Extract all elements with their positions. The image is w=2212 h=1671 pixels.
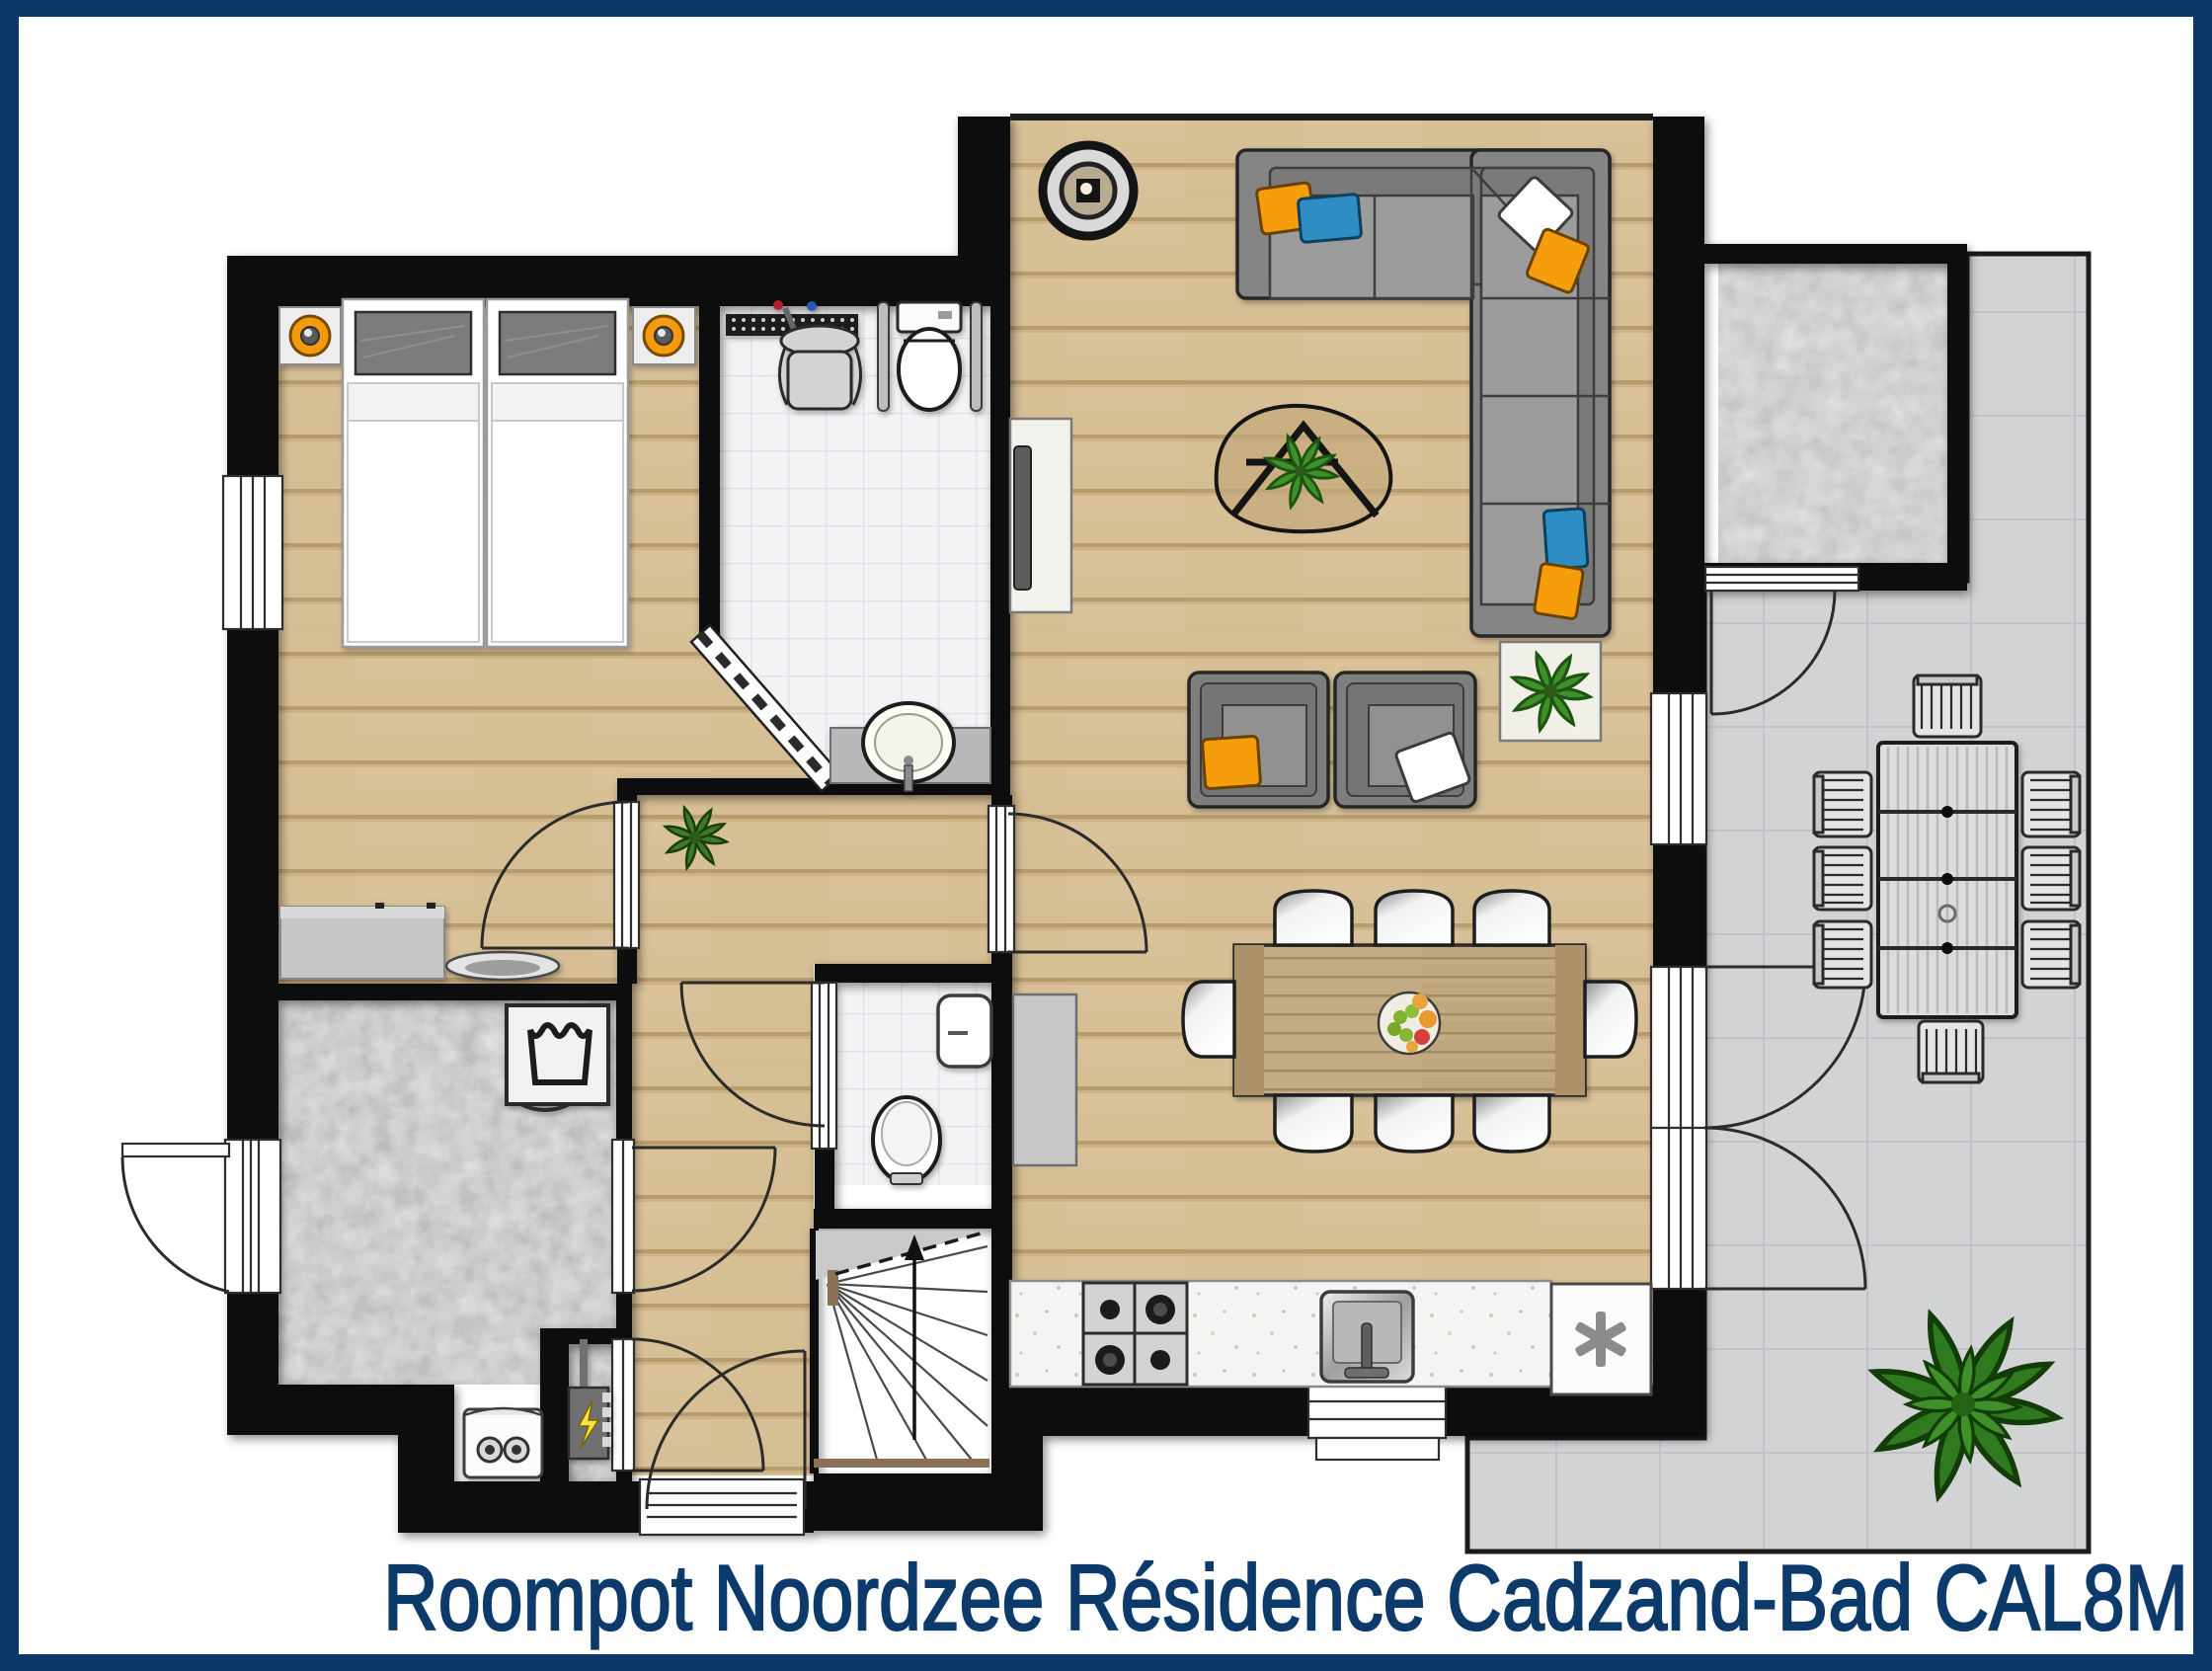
svg-text:Roompot Noordzee Résidence Cad: Roompot Noordzee Résidence Cadzand-Bad C… [383, 1546, 2188, 1649]
